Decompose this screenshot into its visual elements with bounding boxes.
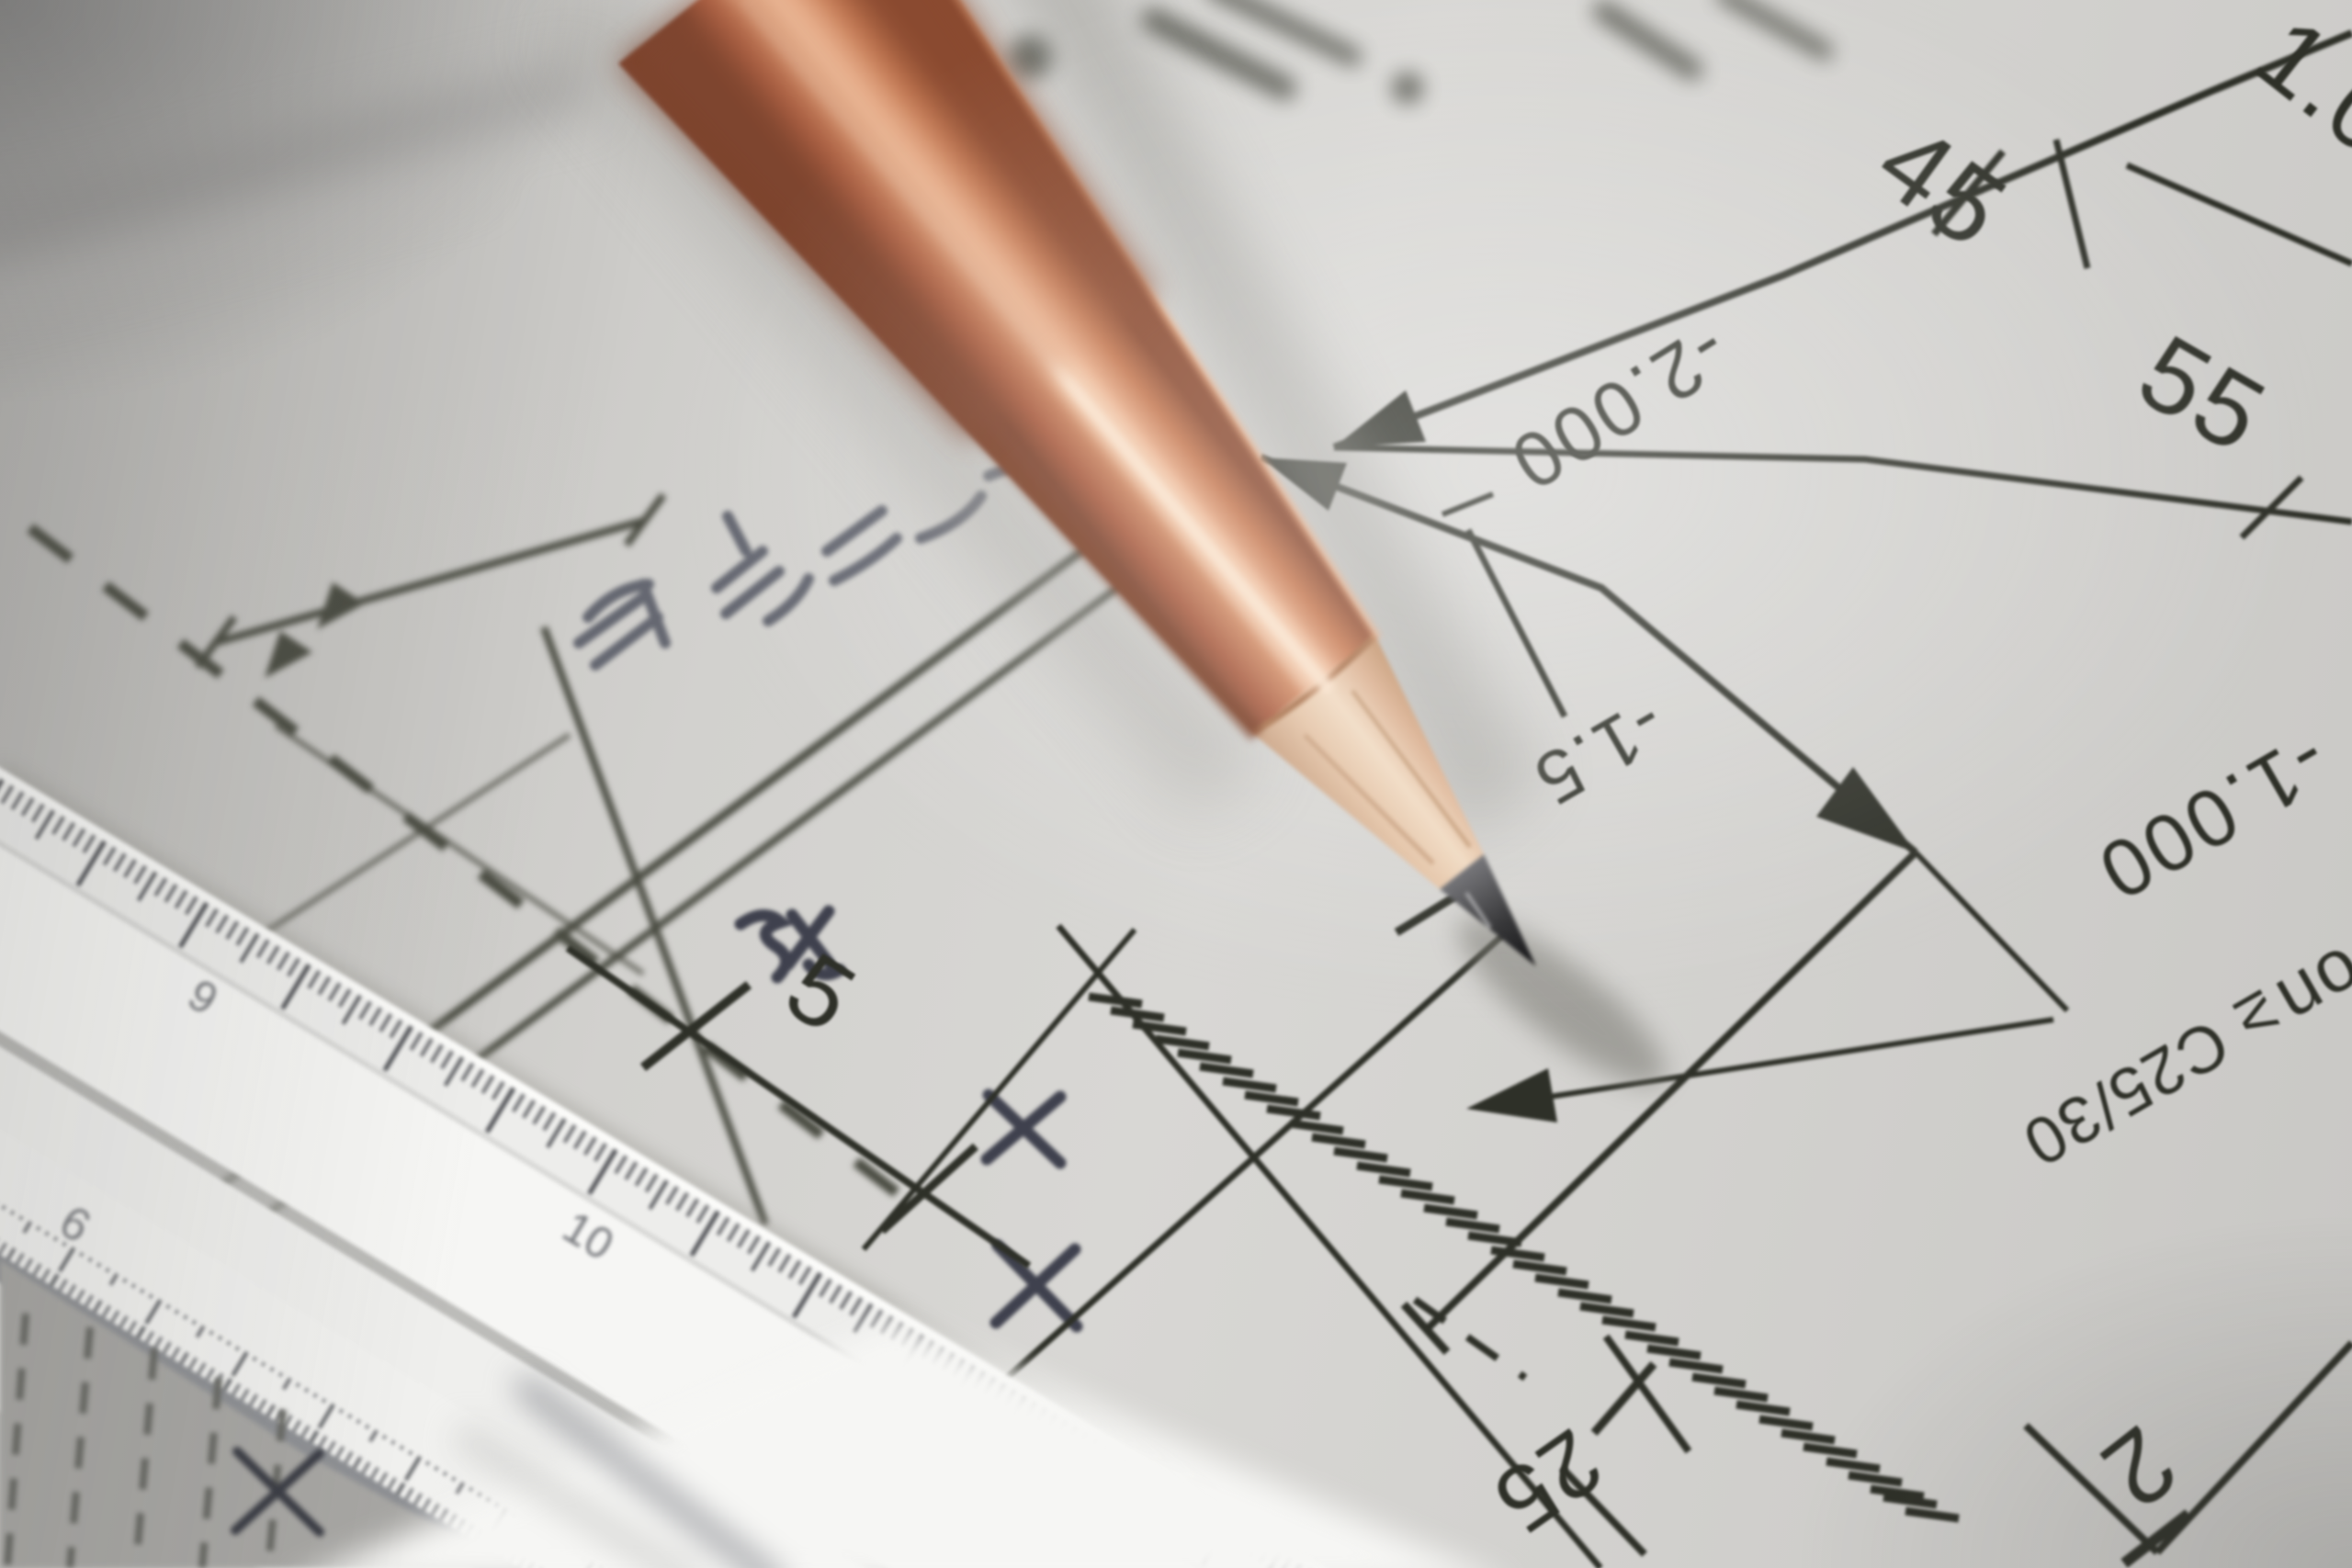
concrete-class-label: ≥ C25/30	[2010, 976, 2291, 1180]
dimension-label-1-0: 1.0	[2235, 0, 2352, 177]
dimension-tick	[627, 495, 663, 545]
drawing-photo-art: 45 55 1.0 -2.000 -1.5 -1.000 on ≥ C25/30…	[0, 0, 2352, 1568]
photo-canvas: 45 55 1.0 -2.000 -1.5 -1.000 on ≥ C25/30…	[0, 0, 2352, 1568]
level-label-minus-1000: -1.000	[2082, 716, 2345, 920]
drawing-line	[1916, 852, 2067, 1010]
paper-fold-shadow	[0, 83, 588, 303]
level-label-minus-1-5: -1.5	[1520, 682, 1679, 822]
grid-line	[230, 735, 570, 955]
arrowhead	[265, 631, 312, 678]
handwritten-x-mark	[996, 1246, 1077, 1326]
dimension-label-45: 45	[1856, 100, 2030, 272]
dimension-tick	[643, 985, 749, 1067]
extension-line	[2056, 140, 2087, 268]
handwritten-x-mark	[987, 1095, 1060, 1163]
drawing-line	[864, 930, 1135, 1249]
dimension-line	[2127, 165, 2352, 264]
dimension-tick	[1442, 494, 1493, 514]
dimension-tick	[1594, 1364, 1654, 1433]
arrowhead	[1466, 1068, 1557, 1122]
pencil	[618, 0, 1536, 966]
dimension-label-55: 55	[2120, 313, 2286, 477]
dimension-line	[214, 521, 643, 643]
arrowhead	[317, 582, 365, 629]
dimension-label-2: 2	[2082, 1404, 2198, 1530]
